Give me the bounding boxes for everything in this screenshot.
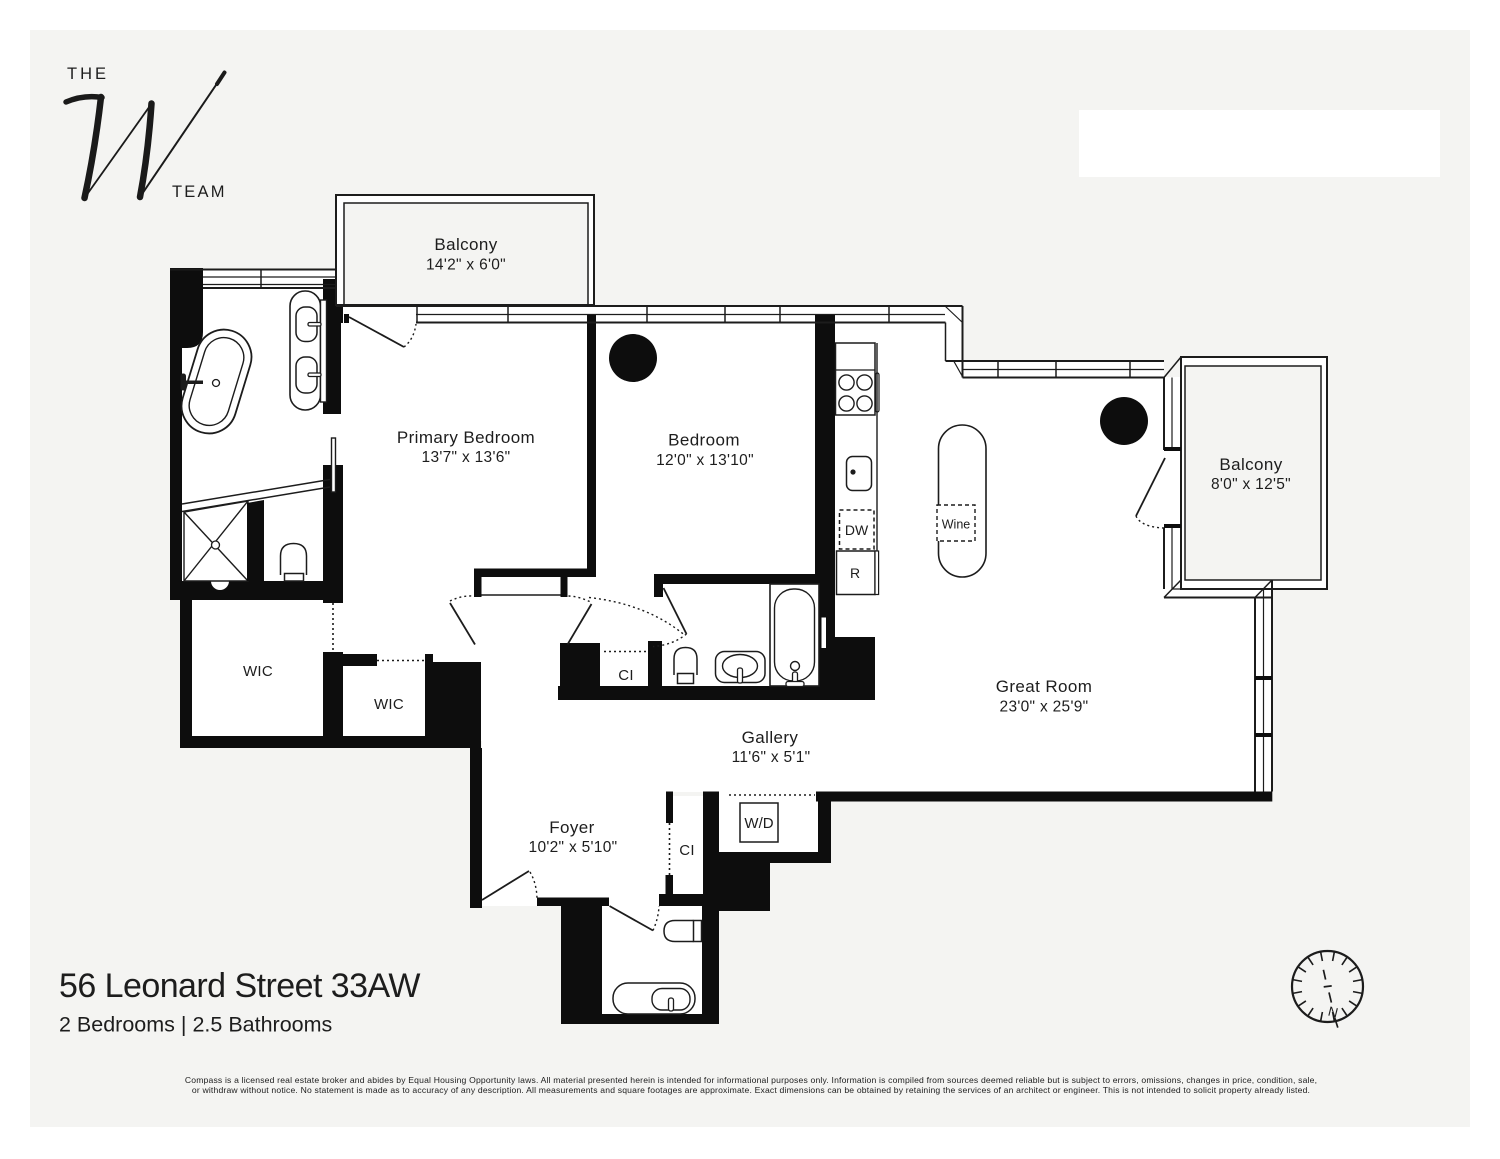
- svg-text:CI: CI: [679, 842, 695, 859]
- svg-text:Compass is a licensed real est: Compass is a licensed real estate broker…: [185, 1075, 1317, 1085]
- svg-text:W/D: W/D: [744, 815, 773, 832]
- svg-text:or withdraw without notice. No: or withdraw without notice. No statement…: [192, 1085, 1310, 1095]
- svg-text:Balcony: Balcony: [1219, 455, 1282, 474]
- svg-text:Great Room: Great Room: [996, 677, 1093, 696]
- svg-text:WIC: WIC: [243, 663, 273, 680]
- svg-text:CI: CI: [618, 667, 634, 684]
- svg-text:8'0" x 12'5": 8'0" x 12'5": [1211, 476, 1291, 493]
- svg-text:WIC: WIC: [374, 696, 404, 713]
- svg-text:14'2" x 6'0": 14'2" x 6'0": [426, 257, 506, 274]
- svg-text:TEAM: TEAM: [172, 183, 227, 201]
- svg-text:Bedroom: Bedroom: [668, 431, 740, 450]
- svg-text:DW: DW: [845, 522, 869, 538]
- svg-text:10'2" x 5'10": 10'2" x 5'10": [529, 839, 618, 856]
- svg-text:2 Bedrooms | 2.5 Bathrooms: 2 Bedrooms | 2.5 Bathrooms: [59, 1013, 332, 1037]
- svg-text:Primary Bedroom: Primary Bedroom: [397, 428, 535, 447]
- svg-text:Gallery: Gallery: [742, 728, 799, 747]
- svg-text:Balcony: Balcony: [434, 235, 497, 254]
- svg-text:THE: THE: [67, 65, 109, 83]
- svg-text:Wine: Wine: [942, 518, 971, 532]
- svg-text:Foyer: Foyer: [549, 818, 594, 837]
- svg-text:13'7" x 13'6": 13'7" x 13'6": [422, 449, 511, 466]
- svg-text:12'0" x 13'10": 12'0" x 13'10": [656, 452, 754, 469]
- svg-text:23'0" x 25'9": 23'0" x 25'9": [1000, 699, 1089, 716]
- svg-text:11'6" x 5'1": 11'6" x 5'1": [732, 749, 811, 766]
- svg-text:56 Leonard Street 33AW: 56 Leonard Street 33AW: [59, 967, 420, 1005]
- svg-text:R: R: [850, 565, 860, 581]
